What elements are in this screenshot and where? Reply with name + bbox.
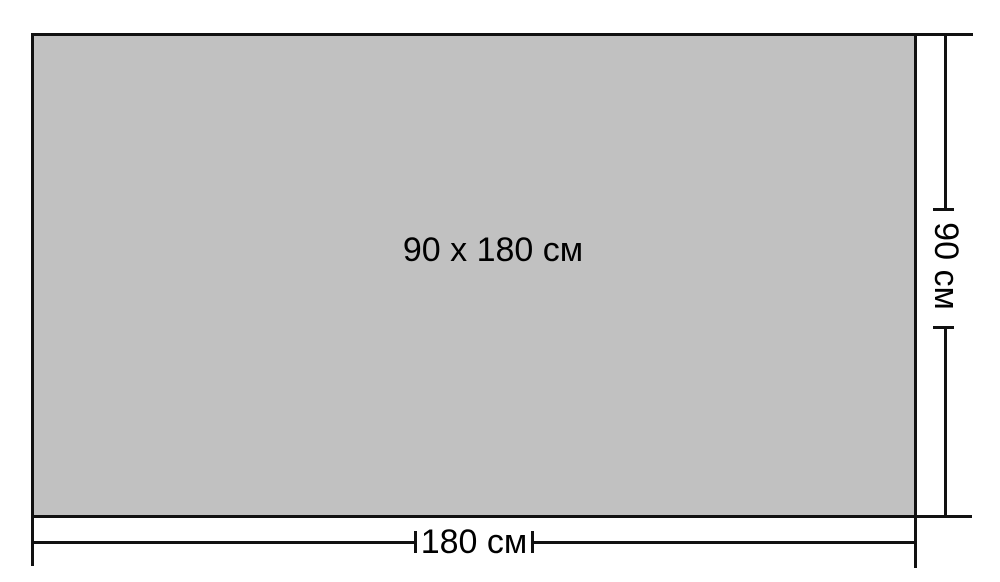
width-dimension-tick-left: [414, 531, 417, 553]
width-dimension-line-right: [534, 541, 917, 544]
height-dimension-tick-top: [933, 208, 954, 211]
size-label: 90 x 180 см: [403, 233, 583, 267]
width-dimension-label: 180 см: [421, 525, 528, 559]
height-dimension-line-lower: [944, 329, 947, 518]
height-dimension-line-upper: [944, 33, 947, 210]
size-diagram: 90 x 180 см 90 см 180 см: [0, 0, 1000, 582]
height-dimension-label: 90 см: [929, 222, 963, 310]
width-dimension-line-left: [31, 541, 415, 544]
measured-rectangle: [31, 33, 917, 518]
